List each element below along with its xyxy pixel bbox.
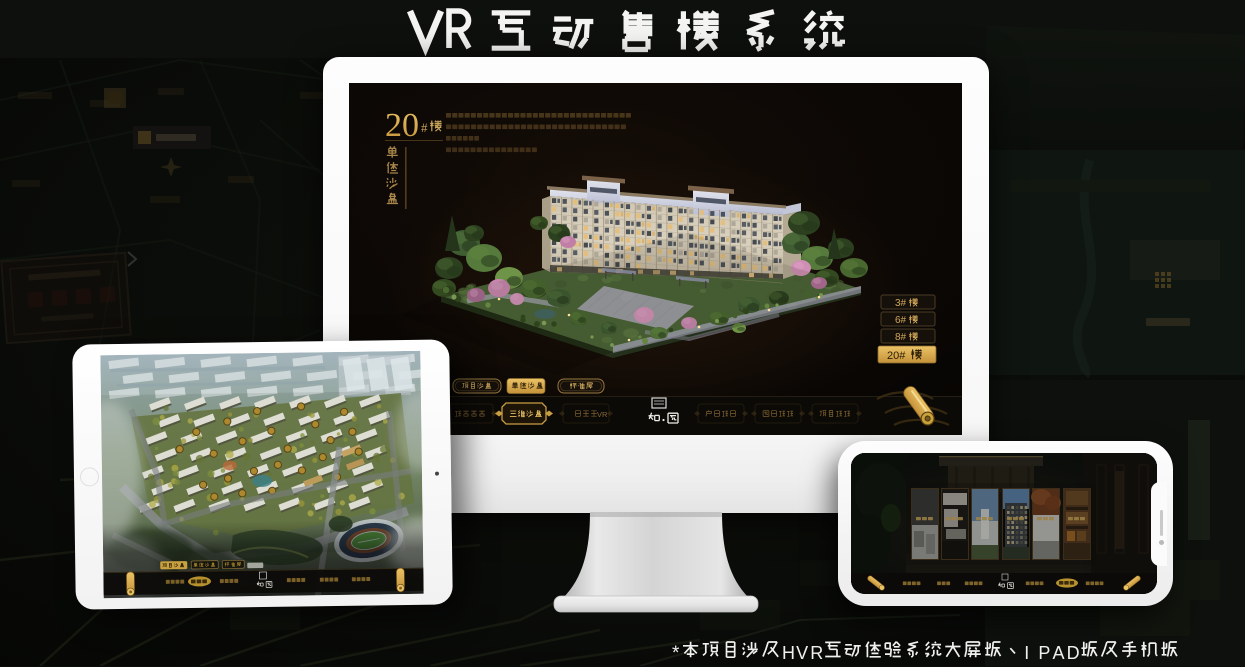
- svg-text:A: A: [1053, 643, 1065, 663]
- svg-text:R: R: [810, 643, 823, 663]
- svg-text:3#: 3#: [895, 298, 907, 309]
- svg-text:I: I: [1024, 643, 1029, 663]
- svg-text:P: P: [1038, 643, 1050, 663]
- svg-text:H: H: [782, 643, 795, 663]
- svg-text:V: V: [796, 643, 808, 663]
- svg-text:*: *: [672, 643, 680, 664]
- svg-text:VR: VR: [597, 410, 608, 419]
- svg-text:6#: 6#: [895, 315, 907, 326]
- svg-text:8#: 8#: [895, 332, 907, 343]
- svg-text:#: #: [421, 120, 428, 135]
- svg-text:D: D: [1067, 643, 1080, 663]
- svg-text:20#: 20#: [887, 350, 906, 362]
- svg-text:20: 20: [385, 107, 419, 144]
